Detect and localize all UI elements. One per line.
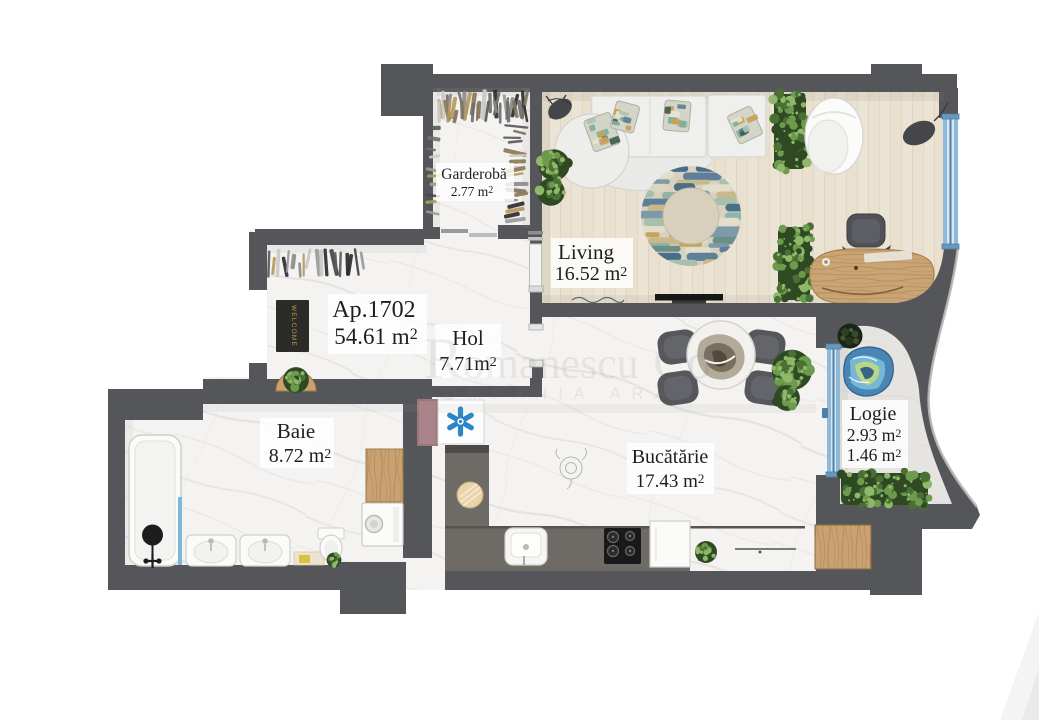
svg-text:WELCOME: WELCOME [290,305,297,347]
svg-text:Garderobă: Garderobă [441,166,507,183]
svg-text:Bucătărie: Bucătărie [632,446,709,468]
svg-text:8.72 m2: 8.72 m2 [269,445,332,467]
svg-text:2.93 m2: 2.93 m2 [847,425,902,445]
svg-text:Baie: Baie [277,419,315,443]
svg-text:COMPANIA ARA: COMPANIA ARA [421,385,676,403]
svg-text:17.43 m2: 17.43 m2 [636,471,705,492]
svg-text:Living: Living [558,240,614,264]
svg-text:16.52 m2: 16.52 m2 [555,263,628,285]
svg-text:Logie: Logie [850,403,897,425]
svg-text:2.77 m2: 2.77 m2 [451,184,494,199]
svg-text:Ap.1702: Ap.1702 [332,297,415,323]
svg-text:54.61 m2: 54.61 m2 [334,324,417,349]
svg-text:1.46 m2: 1.46 m2 [847,445,902,465]
